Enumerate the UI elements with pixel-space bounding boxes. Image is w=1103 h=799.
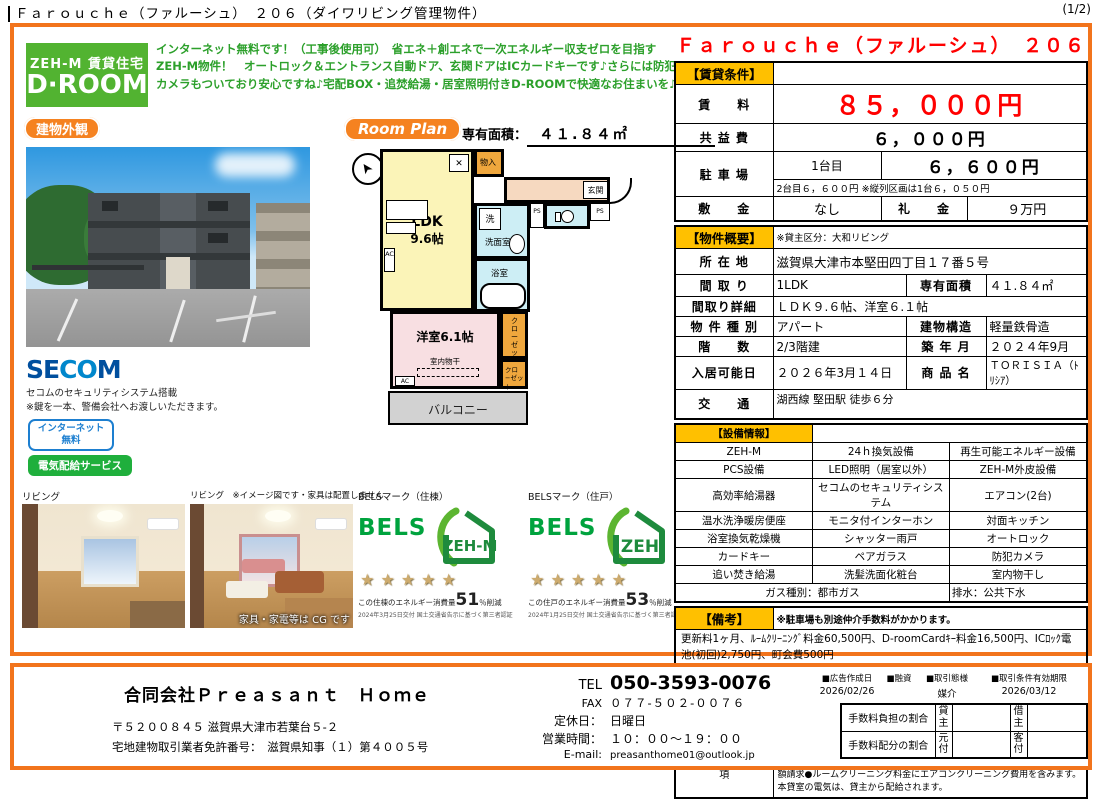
living-photo2-label: リビング ※イメージ図です・家具は配置しません xyxy=(190,489,384,501)
email-row: E-mail:preasanthome01@outlook.jp xyxy=(530,748,810,761)
carport-shape xyxy=(32,265,144,270)
room-washroom: 洗 洗面室 xyxy=(474,203,530,259)
bels-brand-text: BELS xyxy=(358,515,426,541)
email-label: E-mail: xyxy=(530,748,602,761)
remarks-note: ※駐車場も別途仲介手数料がかかります。 xyxy=(773,607,1087,630)
window-shape xyxy=(208,201,228,211)
bels-consumption-prefix: この住戸のエネルギー消費量 xyxy=(528,598,626,607)
validity-col: ■取引条件有効期限2026/03/12 xyxy=(976,672,1082,700)
rent-value: ８５，０００円 xyxy=(773,85,1087,124)
tel-row: TEL050-3593-0076 xyxy=(530,672,810,694)
internet-badge-line1: インターネット xyxy=(30,423,112,435)
rental-section-header: 【賃貸条件】 xyxy=(675,62,773,85)
washbasin-icon xyxy=(509,234,525,254)
entrance-label-box: 玄関 xyxy=(583,181,608,199)
floor-plan: ➤ LDK9.6帖 ✕ AC 物入 玄関 洗 洗面室 PS xyxy=(350,145,668,437)
owner-note: ※貸主区分：大和リビング xyxy=(773,226,1087,249)
equipment-cell: オートロック xyxy=(949,530,1087,548)
fee-split-row: 手数料配分の割合 元付 客付 xyxy=(841,731,1087,758)
window-bright xyxy=(81,536,139,587)
sofa-shape xyxy=(275,571,324,593)
bels-consumption-line: この住戸のエネルギー消費量53％削減 xyxy=(528,590,688,610)
equipment-cell: 洗髪洗面化粧台 xyxy=(812,566,949,584)
equipment-table: 【設備情報】 ZEH-M24ｈ換気設備再生可能エネルギー設備 PCS設備LED照… xyxy=(674,423,1088,603)
holiday-row: 定休日：日曜日 xyxy=(530,712,810,729)
parking-value: ６，６００円 xyxy=(881,152,1087,180)
equipment-cell: ペアガラス xyxy=(812,548,949,566)
rug-shape xyxy=(226,581,268,598)
kitchen-cabinet xyxy=(386,222,416,234)
agency-address: 〒５２００８４５ 滋賀県大津市若葉台５-２ xyxy=(112,719,338,735)
room-toilet xyxy=(544,203,590,229)
bels-logo-row: BELS ZEH xyxy=(528,505,688,569)
agent-owner-label: 元付 xyxy=(935,731,952,758)
droom-logo-top: ZEH-M 賃貸住宅 xyxy=(26,53,148,72)
parking-line xyxy=(57,298,78,341)
equipment-section-spacer xyxy=(812,424,1087,443)
equipment-row: 温水洗浄暖房便座モニタ付インターホン対面キッチン xyxy=(675,512,1087,530)
listing-title: Ｆａｒｏｕｃｈｅ（ファルーシュ） ２０６ xyxy=(674,31,1088,58)
equipment-cell: カードキー xyxy=(675,548,812,566)
key-money-value: ９万円 xyxy=(967,197,1087,221)
overview-section-header: 【物件概要】 xyxy=(675,226,773,249)
door-frame xyxy=(22,504,38,628)
document-title-bar: Ｆａｒｏｕｃｈｅ（ファルーシュ） ２０６（ダイワリビング管理物件） xyxy=(8,2,1095,22)
secom-note: セコムのセキュリティシステム搭載 ※鍵を一本、警備会社へお渡しいただきます。 xyxy=(26,387,223,416)
zeh-house-icon: ZEH xyxy=(596,505,670,569)
structure-label: 建物構造 xyxy=(906,316,986,336)
living-photo1-label: リビング xyxy=(22,489,60,503)
drying-label: 室内物干 xyxy=(393,356,497,367)
toilet-icon xyxy=(561,210,574,223)
balcony-band-1 xyxy=(88,221,250,228)
room-bath: 浴室 xyxy=(474,258,530,312)
bels-cert-line: 2024年3月25日交付 国土交通省告示に基づく第三者認証 xyxy=(358,610,518,619)
loan-label: ■融資 xyxy=(880,672,918,684)
equipment-cell: ZEH-M外皮設備 xyxy=(949,461,1087,479)
layout-value: 1LDK xyxy=(773,274,906,296)
equipment-cell: 防犯カメラ xyxy=(949,548,1087,566)
kitchen-counter xyxy=(386,200,428,220)
equipment-cell: 対面キッチン xyxy=(949,512,1087,530)
equipment-cell: セコムのセキュリティシステム xyxy=(812,479,949,512)
bath-label: 浴室 xyxy=(491,267,508,279)
room-plan-badge-label: Room Plan xyxy=(344,117,461,141)
internet-free-badge: インターネット 無料 xyxy=(28,419,114,451)
window-shape xyxy=(208,233,228,243)
bels-mark-room: BELS ZEH ★★★★★ この住戸のエネルギー消費量53％削減 2024年1… xyxy=(528,505,688,619)
holiday-value: 日曜日 xyxy=(610,712,646,729)
holiday-label: 定休日： xyxy=(530,712,602,729)
equipment-cell: ZEH-M xyxy=(675,443,812,461)
parking-note: 2台目６，６００円 ※縦列区画は1台６，０５０円 xyxy=(773,180,1087,197)
washing-machine-icon: 洗 xyxy=(479,208,501,230)
agent-owner-fee-cell xyxy=(952,731,1010,758)
building-exterior-photo xyxy=(26,147,310,347)
fax-value: ０７７-５０２-００７６ xyxy=(610,695,745,711)
equipment-cell: モニタ付インターホン xyxy=(812,512,949,530)
fee-burden-label: 手数料負担の割合 xyxy=(841,704,935,731)
secom-logo-m: M xyxy=(97,355,121,384)
rental-section-spacer xyxy=(773,62,1087,85)
equipment-row: カードキーペアガラス防犯カメラ xyxy=(675,548,1087,566)
building-shape xyxy=(88,193,250,289)
equipment-cell: LED照明（居室以外） xyxy=(812,461,949,479)
property-type-label: 物 件 種 別 xyxy=(675,316,773,336)
bels-consumption-suffix: ％削減 xyxy=(649,598,672,607)
access-label: 交 通 xyxy=(675,389,773,419)
equipment-cell: エアコン(2台) xyxy=(949,479,1087,512)
electric-service-badge: 電気配給サービス xyxy=(28,455,132,476)
agent-client-fee-cell xyxy=(1027,731,1087,758)
parking-line xyxy=(242,295,257,342)
deal-type-col: ■取引態様媒介 xyxy=(918,672,976,700)
agent-client-label: 客付 xyxy=(1010,731,1027,758)
ac-box-bedroom: AC xyxy=(395,376,415,386)
pipe-space-a: PS xyxy=(530,203,544,228)
product-value: ＴＯＲＩＳＩＡ（ﾄﾘｼｱ） xyxy=(986,356,1087,389)
deposit-value: なし xyxy=(773,197,881,221)
common-fee-label: 共 益 費 xyxy=(675,124,773,152)
main-content-frame: ZEH-M 賃貸住宅 D·ROOM インターネット無料です！（工事後使用可） 省… xyxy=(10,23,1092,656)
common-fee-value: ６，０００円 xyxy=(773,124,1087,152)
hours-label: 営業時間： xyxy=(530,730,602,747)
secom-logo-se: SE xyxy=(26,355,59,384)
bels-percent: 51 xyxy=(456,590,480,610)
hours-value: １０：００～１９：００ xyxy=(610,730,742,747)
tel-value: 050-3593-0076 xyxy=(610,672,771,694)
pipe-space-b: PS xyxy=(590,203,610,221)
key-money-label: 礼 金 xyxy=(881,197,967,221)
agency-footer-frame: 合同会社Ｐｒｅａｓａｎｔ Ｈｏｍｅ 〒５２００８４５ 滋賀県大津市若葉台５-２ … xyxy=(10,663,1092,770)
property-description: インターネット無料です！（工事後使用可） 省エネ＋創エネで一次エネルギー収支ゼロ… xyxy=(156,41,678,93)
closet-small-label: クロ−ゼット xyxy=(505,366,527,391)
parking-line xyxy=(216,311,276,322)
entrance-door-arc xyxy=(608,178,632,204)
deal-type-label: ■取引態様 xyxy=(918,672,976,684)
ad-date-value: 2026/02/26 xyxy=(814,686,880,697)
property-overview-table: 【物件概要】※貸主区分：大和リビング 所 在 地滋賀県大津市本堅田四丁目１７番５… xyxy=(674,225,1088,421)
built-value: ２０２４年9月 xyxy=(986,336,1087,356)
bels-brand-text: BELS xyxy=(528,515,596,541)
rental-conditions-table: 【賃貸条件】 賃 料８５，０００円 共 益 費６，０００円 駐 車 場1台目６，… xyxy=(674,61,1088,222)
storage-label: 物入 xyxy=(480,157,496,168)
address-label: 所 在 地 xyxy=(675,248,773,274)
utilities-row: ガス種別：都市ガス排水：公共下水 xyxy=(675,584,1087,603)
window-shape xyxy=(102,201,118,211)
property-type-value: アパート xyxy=(773,316,906,336)
equipment-cell: 室内物干し xyxy=(949,566,1087,584)
bels-building-label: BELSマーク（住棟） xyxy=(358,489,448,503)
bels-room-label: BELSマーク（住戸） xyxy=(528,489,618,503)
room-bedroom: 洋室6.1帖 室内物干 AC xyxy=(390,311,500,389)
ac-box-ldk: AC xyxy=(384,248,395,272)
cg-disclaimer: 家具・家電等は CG です xyxy=(239,611,350,626)
area-label-row: 専有面積 xyxy=(906,274,986,296)
property-flyer-page: { "colors":{"accent_orange":"#f2741c","h… xyxy=(0,0,1103,775)
parking-line xyxy=(169,300,185,343)
equipment-row: ZEH-M24ｈ換気設備再生可能エネルギー設備 xyxy=(675,443,1087,461)
deal-header-row: ■広告作成日2026/02/26 ■融資 ■取引態様媒介 ■取引条件有効期限20… xyxy=(814,672,1090,700)
equipment-cell: 追い焚き給湯 xyxy=(675,566,812,584)
bels-consumption-line: この住棟のエネルギー消費量51％削減 xyxy=(358,590,518,610)
agency-contact-block: TEL050-3593-0076 FAX０７７-５０２-００７６ 定休日：日曜日… xyxy=(530,672,810,762)
floors-value: 2/3階建 xyxy=(773,336,906,356)
compass-arrow: ➤ xyxy=(357,159,377,178)
structure-value: 軽量鉄骨造 xyxy=(986,316,1087,336)
product-label: 商 品 名 xyxy=(906,356,986,389)
closet-tall: クローゼット xyxy=(500,311,528,359)
internet-badge-line2: 無料 xyxy=(30,435,112,447)
parking-lot-shape xyxy=(26,289,310,347)
room-plan-badge: Room Plan xyxy=(344,117,461,141)
aircon-unit xyxy=(315,518,347,530)
bels-mark-building: BELS ZEH-M ★★★★★ この住棟のエネルギー消費量51％削減 2024… xyxy=(358,505,518,619)
tel-label: TEL xyxy=(530,678,602,693)
equipment-row: 高効率給湯器セコムのセキュリティシステムエアコン(2台) xyxy=(675,479,1087,512)
equipment-cell: PCS設備 xyxy=(675,461,812,479)
secom-note-line2: ※鍵を一本、警備会社へお渡しいただきます。 xyxy=(26,401,223,415)
bels-stars: ★★★★★ xyxy=(530,570,688,589)
entrance-corridor: 玄関 xyxy=(504,177,610,203)
address-value: 滋賀県大津市本堅田四丁目１７番５号 xyxy=(773,248,1087,274)
ceiling-light xyxy=(265,510,291,522)
fax-row: FAX０７７-５０２-００７６ xyxy=(530,695,810,711)
rent-label: 賃 料 xyxy=(675,85,773,124)
entrance-shape xyxy=(166,257,190,289)
cloud-shape xyxy=(215,153,295,177)
equipment-cell: シャッター雨戸 xyxy=(812,530,949,548)
deal-info-block: ■広告作成日2026/02/26 ■融資 ■取引態様媒介 ■取引条件有効期限20… xyxy=(814,672,1090,759)
closet-small: クロ−ゼット xyxy=(500,359,528,389)
drainage-type: 排水：公共下水 xyxy=(949,584,1087,603)
equipment-row: 浴室換気乾燥機シャッター雨戸オートロック xyxy=(675,530,1087,548)
loan-col: ■融資 xyxy=(880,672,918,700)
fee-table: 手数料負担の割合 貸主 借主 手数料配分の割合 元付 客付 xyxy=(840,703,1088,759)
lessor-label: 貸主 xyxy=(935,704,952,731)
washroom-label: 洗面室 xyxy=(485,236,511,248)
email-value: preasanthome01@outlook.jp xyxy=(610,750,755,761)
page-number: (1/2) xyxy=(1062,2,1091,16)
toilet-tank-icon xyxy=(555,212,561,222)
movein-label: 入居可能日 xyxy=(675,356,773,389)
document-title: Ｆａｒｏｕｃｈｅ（ファルーシュ） ２０６（ダイワリビング管理物件） xyxy=(8,6,486,22)
area-value-row: ４１.８４㎡ xyxy=(986,274,1087,296)
equipment-cell: 浴室換気乾燥機 xyxy=(675,530,812,548)
bels-stars: ★★★★★ xyxy=(360,570,518,589)
drying-bar-icon xyxy=(417,368,479,377)
parking-label: 駐 車 場 xyxy=(675,152,773,197)
deal-type-value: 媒介 xyxy=(918,686,976,700)
zeh-text: ZEH xyxy=(621,537,659,557)
door-frame xyxy=(190,504,204,628)
vent-icon: ✕ xyxy=(449,154,469,172)
validity-value: 2026/03/12 xyxy=(976,686,1082,697)
living-photo-2-cg: 家具・家電等は CG です xyxy=(190,504,353,628)
equipment-section-header: 【設備情報】 xyxy=(675,424,812,443)
bathtub-icon xyxy=(480,283,526,309)
fee-split-label: 手数料配分の割合 xyxy=(841,731,935,758)
bels-cert-line: 2024年1月25日交付 国土交通省告示に基づく第三者認証 xyxy=(528,610,688,619)
equipment-cell: 24ｈ換気設備 xyxy=(812,443,949,461)
equipment-cell: 温水洗浄暖房便座 xyxy=(675,512,812,530)
lessor-fee-cell xyxy=(952,704,1010,731)
equipment-row: PCS設備LED照明（居室以外）ZEH-M外皮設備 xyxy=(675,461,1087,479)
deposit-label: 敷 金 xyxy=(675,197,773,221)
equipment-cell: 再生可能エネルギー設備 xyxy=(949,443,1087,461)
layout-detail-value: ＬＤＫ９.６帖、洋室６.１帖 xyxy=(773,296,1087,316)
secom-logo: SECOM xyxy=(26,355,121,384)
exterior-badge: 建物外観 xyxy=(24,117,100,140)
neighbor-building-shape xyxy=(256,203,310,289)
living-photo-1 xyxy=(22,504,185,628)
balcony-label: バルコニー xyxy=(390,401,526,418)
ceiling-light xyxy=(97,510,123,522)
balcony: バルコニー xyxy=(388,391,528,425)
layout-detail-label: 間取り詳細 xyxy=(675,296,773,316)
counter-shape xyxy=(130,601,185,628)
zehm-house-icon: ZEH-M xyxy=(426,505,500,569)
built-label: 築 年 月 xyxy=(906,336,986,356)
ad-date-col: ■広告作成日2026/02/26 xyxy=(814,672,880,700)
area-label: 専有面積： xyxy=(462,128,527,143)
droom-logo: ZEH-M 賃貸住宅 D·ROOM xyxy=(26,43,148,107)
validity-label: ■取引条件有効期限 xyxy=(976,672,1082,684)
exterior-badge-label: 建物外観 xyxy=(24,117,100,140)
parking-unit: 1台目 xyxy=(773,152,881,180)
fee-burden-row: 手数料負担の割合 貸主 借主 xyxy=(841,704,1087,731)
access-value: 湖西線 堅田駅 徒歩６分 xyxy=(773,389,1087,419)
room-ldk: LDK9.6帖 ✕ AC xyxy=(380,149,474,311)
lessee-label: 借主 xyxy=(1010,704,1027,731)
bels-consumption-suffix: ％削減 xyxy=(479,598,502,607)
bels-percent: 53 xyxy=(626,590,650,610)
ad-date-label: ■広告作成日 xyxy=(814,672,880,684)
room-storage: 物入 xyxy=(474,149,504,177)
equipment-row: 追い焚き給湯洗髪洗面化粧台室内物干し xyxy=(675,566,1087,584)
floors-label: 階 数 xyxy=(675,336,773,356)
secom-logo-co: CO xyxy=(59,355,97,384)
gas-type: ガス種別：都市ガス xyxy=(675,584,949,603)
lessee-fee-cell xyxy=(1027,704,1087,731)
bedroom-label: 洋室6.1帖 xyxy=(393,328,497,345)
secom-note-line1: セコムのセキュリティシステム搭載 xyxy=(26,387,223,401)
renewal-fees: 更新料1ヶ月、ﾙｰﾑｸﾘｰﾆﾝｸﾞ料金60,500円、D-roomCardｷｰ料… xyxy=(675,630,1087,667)
agency-name: 合同会社Ｐｒｅａｓａｎｔ Ｈｏｍｅ xyxy=(124,681,430,706)
droom-logo-main: D·ROOM xyxy=(26,72,148,98)
bels-logo-row: BELS ZEH-M xyxy=(358,505,518,569)
movein-value: ２０２６年3月１４日 xyxy=(773,356,906,389)
agency-license: 宅地建物取引業者免許番号： 滋賀県知事（１）第４００５号 xyxy=(112,739,428,755)
hours-row: 営業時間：１０：００～１９：００ xyxy=(530,730,810,747)
fax-label: FAX xyxy=(530,697,602,710)
equipment-cell: 高効率給湯器 xyxy=(675,479,812,512)
layout-label: 間 取 り xyxy=(675,274,773,296)
bels-consumption-prefix: この住棟のエネルギー消費量 xyxy=(358,598,456,607)
zehm-text: ZEH-M xyxy=(443,537,498,555)
remarks-section-header: 【備考】 xyxy=(675,607,773,630)
aircon-unit xyxy=(147,518,179,530)
